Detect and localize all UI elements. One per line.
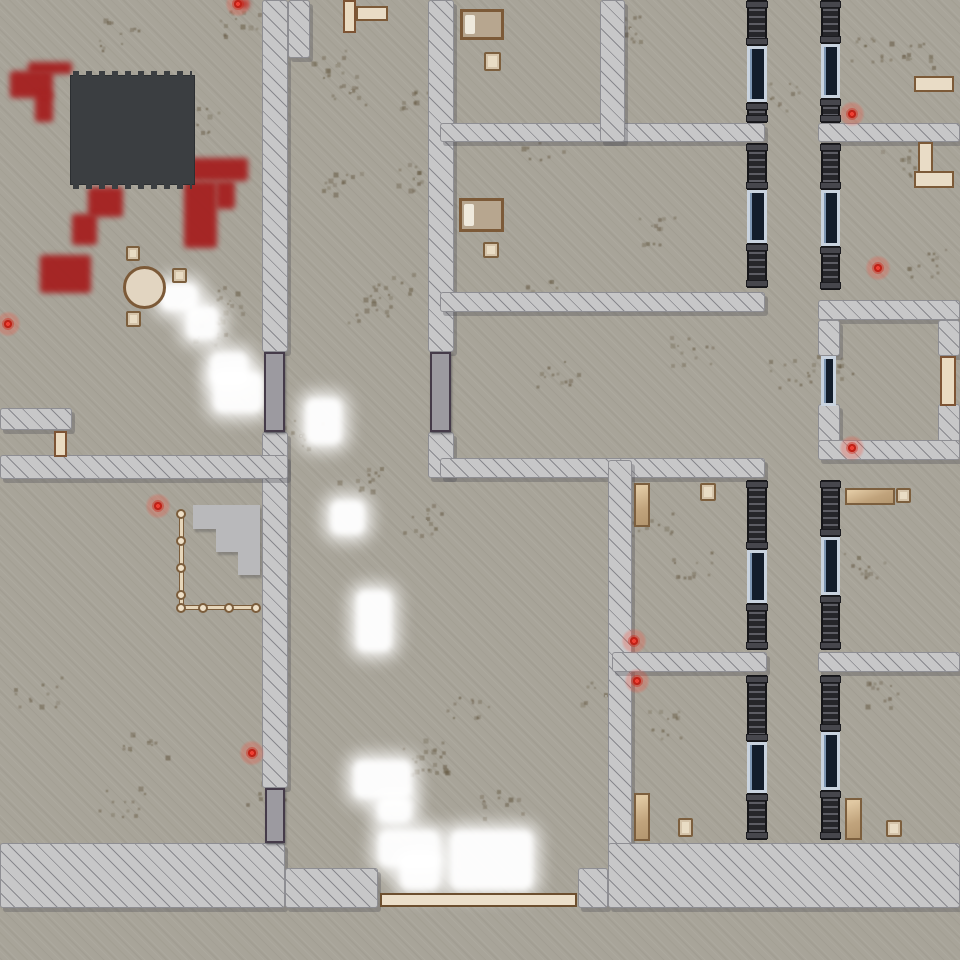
fence-post bbox=[176, 509, 186, 519]
dirt-decal bbox=[560, 372, 562, 374]
shelf-end-cap bbox=[746, 182, 768, 189]
store-shelf bbox=[747, 0, 767, 46]
roof-edge-teeth bbox=[73, 184, 192, 189]
platform-step bbox=[216, 529, 260, 552]
window bbox=[821, 356, 836, 406]
locker bbox=[845, 798, 862, 840]
blood-decal bbox=[40, 255, 91, 293]
blood-decal bbox=[184, 181, 217, 248]
platform-step bbox=[238, 552, 260, 575]
shelf-end-cap bbox=[746, 481, 768, 488]
wall-segment bbox=[0, 843, 285, 908]
dirt-decal bbox=[868, 48, 870, 50]
shelf-end-cap bbox=[746, 832, 768, 839]
chair bbox=[896, 488, 911, 503]
dirt-decal bbox=[605, 695, 607, 697]
shelf-end-cap bbox=[746, 642, 768, 649]
shelf-end-cap bbox=[820, 724, 841, 731]
dirt-decal bbox=[630, 28, 632, 30]
store-shelf bbox=[821, 480, 840, 537]
blood-decal bbox=[88, 187, 123, 217]
light-glow bbox=[186, 306, 219, 340]
metal-door bbox=[265, 788, 285, 843]
roof-edge-teeth bbox=[73, 71, 192, 76]
shelf-end-cap bbox=[746, 144, 768, 151]
store-shelf bbox=[747, 603, 767, 650]
display-case bbox=[821, 190, 840, 246]
nightstand bbox=[484, 52, 501, 71]
light-glow bbox=[213, 372, 263, 413]
display-case bbox=[747, 742, 767, 793]
dirt-decal bbox=[862, 565, 864, 567]
store-shelf bbox=[747, 243, 767, 288]
wall-segment bbox=[600, 0, 625, 142]
dirt-decal bbox=[122, 802, 124, 804]
shelf-end-cap bbox=[746, 1, 768, 8]
store-shelf bbox=[821, 143, 840, 190]
fence-post bbox=[176, 603, 186, 613]
zombie-marker bbox=[621, 628, 647, 654]
dirt-decal bbox=[430, 760, 432, 762]
chair bbox=[700, 483, 716, 501]
shelf-end-cap bbox=[820, 36, 841, 43]
wall-segment bbox=[938, 320, 960, 356]
wall-segment bbox=[818, 300, 960, 320]
zombie-marker bbox=[0, 311, 21, 337]
display-case bbox=[747, 550, 767, 603]
dirt-decal bbox=[300, 435, 302, 437]
wall-segment bbox=[938, 404, 960, 442]
blood-decal bbox=[35, 93, 53, 122]
zombie-marker bbox=[239, 740, 265, 766]
light-glow bbox=[356, 590, 392, 652]
dirt-decal bbox=[262, 792, 264, 794]
dirt-decal bbox=[425, 520, 427, 522]
wood-door bbox=[54, 431, 67, 457]
dirt-decal bbox=[652, 525, 654, 527]
chair bbox=[126, 246, 140, 261]
wall-segment bbox=[440, 292, 765, 312]
locker bbox=[634, 793, 650, 841]
dirt-decal bbox=[790, 375, 792, 377]
platform-step bbox=[193, 505, 260, 529]
round-table bbox=[123, 266, 166, 309]
store-shelf bbox=[747, 793, 767, 840]
fence-post bbox=[176, 536, 186, 546]
game-map-canvas[interactable] bbox=[0, 0, 960, 960]
dirt-decal bbox=[425, 755, 427, 757]
light-glow bbox=[305, 398, 342, 445]
dirt-decal bbox=[370, 310, 372, 312]
metal-door bbox=[430, 352, 451, 432]
zombie-marker bbox=[839, 435, 865, 461]
store-shelf bbox=[821, 0, 840, 44]
zombie-marker bbox=[225, 0, 251, 17]
shelf-end-cap bbox=[746, 734, 768, 741]
fence-post bbox=[224, 603, 234, 613]
wall-segment bbox=[262, 432, 288, 788]
display-case bbox=[821, 537, 840, 595]
shelf-end-cap bbox=[820, 247, 841, 254]
fence-post bbox=[198, 603, 208, 613]
bed bbox=[460, 9, 504, 40]
dirt-decal bbox=[690, 565, 692, 567]
counter bbox=[380, 893, 577, 907]
blood-decal bbox=[72, 214, 97, 245]
dirt-decal bbox=[782, 95, 784, 97]
dirt-decal bbox=[905, 162, 907, 164]
shelf-end-cap bbox=[820, 1, 841, 8]
blood-decal bbox=[216, 181, 235, 209]
display-case bbox=[821, 732, 840, 790]
store-shelf bbox=[821, 246, 840, 290]
nightstand bbox=[483, 242, 499, 258]
wall-segment bbox=[285, 868, 378, 908]
blood-decal bbox=[190, 158, 248, 181]
dirt-decal bbox=[470, 705, 472, 707]
dirt-decal bbox=[38, 692, 40, 694]
wood-door bbox=[343, 0, 356, 33]
shelf-end-cap bbox=[746, 38, 768, 45]
store-shelf bbox=[747, 480, 767, 550]
shelf-end-cap bbox=[820, 282, 841, 289]
dirt-decal bbox=[390, 285, 392, 287]
locker bbox=[634, 483, 650, 527]
display-case bbox=[747, 190, 767, 243]
fence-post bbox=[251, 603, 261, 613]
light-glow bbox=[400, 855, 440, 890]
bed bbox=[459, 198, 504, 232]
light-glow bbox=[353, 760, 412, 799]
store-shelf bbox=[747, 143, 767, 190]
pillow bbox=[464, 204, 474, 226]
wall-segment bbox=[818, 320, 840, 356]
store-shelf bbox=[747, 675, 767, 742]
shelf-end-cap bbox=[820, 529, 841, 536]
dirt-decal bbox=[500, 805, 502, 807]
wall-segment bbox=[262, 0, 288, 352]
shelf-end-cap bbox=[820, 182, 841, 189]
dirt-decal bbox=[655, 232, 657, 234]
light-glow bbox=[330, 500, 365, 535]
shelf-end-cap bbox=[820, 596, 841, 603]
dirt-decal bbox=[145, 745, 147, 747]
shelf-end-cap bbox=[820, 832, 841, 839]
store-shelf bbox=[821, 98, 840, 123]
shelf-end-cap bbox=[820, 642, 841, 649]
dirt-decal bbox=[230, 302, 232, 304]
shelf-end-cap bbox=[746, 542, 768, 549]
dirt-decal bbox=[543, 145, 545, 147]
shelf-end-cap bbox=[746, 794, 768, 801]
dirt-decal bbox=[240, 22, 242, 24]
pillow bbox=[465, 15, 475, 34]
wall-segment bbox=[440, 458, 765, 478]
wall-segment bbox=[608, 843, 960, 908]
shelf-end-cap bbox=[746, 676, 768, 683]
shelf-end-cap bbox=[746, 103, 768, 110]
dirt-decal bbox=[930, 262, 932, 264]
wall-segment bbox=[818, 404, 840, 442]
display-case bbox=[747, 46, 767, 102]
shelf-end-cap bbox=[820, 676, 841, 683]
store-shelf bbox=[747, 102, 767, 123]
wall-segment bbox=[578, 868, 608, 908]
zombie-marker bbox=[624, 668, 650, 694]
wall-segment bbox=[0, 455, 288, 479]
fence-post bbox=[176, 590, 186, 600]
zombie-marker bbox=[865, 255, 891, 281]
store-shelf bbox=[821, 595, 840, 650]
metal-door bbox=[264, 352, 285, 432]
table bbox=[918, 142, 933, 173]
zombie-marker bbox=[145, 493, 171, 519]
table bbox=[356, 6, 388, 21]
dirt-decal bbox=[912, 55, 914, 57]
dirt-decal bbox=[660, 725, 662, 727]
roof-block bbox=[70, 75, 195, 185]
shelf-end-cap bbox=[820, 791, 841, 798]
shelf-end-cap bbox=[746, 244, 768, 251]
shelf-end-cap bbox=[820, 144, 841, 151]
dirt-decal bbox=[880, 695, 882, 697]
store-shelf bbox=[821, 675, 840, 732]
dirt-decal bbox=[335, 62, 337, 64]
fence-rail bbox=[179, 605, 259, 610]
store-shelf bbox=[821, 790, 840, 840]
shelf-end-cap bbox=[820, 99, 841, 106]
light-glow bbox=[377, 797, 412, 823]
wall-segment bbox=[288, 0, 310, 58]
locker bbox=[845, 488, 895, 505]
dirt-decal bbox=[195, 118, 197, 120]
shelf-end-cap bbox=[746, 604, 768, 611]
dirt-decal bbox=[690, 350, 692, 352]
dirt-decal bbox=[350, 90, 352, 92]
wood-door bbox=[940, 356, 956, 406]
dirt-decal bbox=[415, 178, 417, 180]
dirt-decal bbox=[360, 482, 362, 484]
dirt-decal bbox=[120, 35, 122, 37]
chair bbox=[126, 311, 141, 327]
shelf-end-cap bbox=[746, 280, 768, 287]
chair bbox=[886, 820, 902, 837]
table bbox=[914, 171, 954, 188]
wall-segment bbox=[818, 652, 960, 672]
shelf-end-cap bbox=[746, 115, 768, 122]
table bbox=[914, 76, 954, 92]
shelf-end-cap bbox=[820, 115, 841, 122]
wall-segment bbox=[0, 408, 72, 430]
display-case bbox=[821, 44, 840, 98]
chair bbox=[678, 818, 693, 837]
chair bbox=[172, 268, 187, 283]
dirt-decal bbox=[340, 185, 342, 187]
light-glow bbox=[450, 830, 533, 890]
shelf-end-cap bbox=[820, 481, 841, 488]
fence-post bbox=[176, 563, 186, 573]
dirt-decal bbox=[410, 95, 412, 97]
zombie-marker bbox=[839, 101, 865, 127]
